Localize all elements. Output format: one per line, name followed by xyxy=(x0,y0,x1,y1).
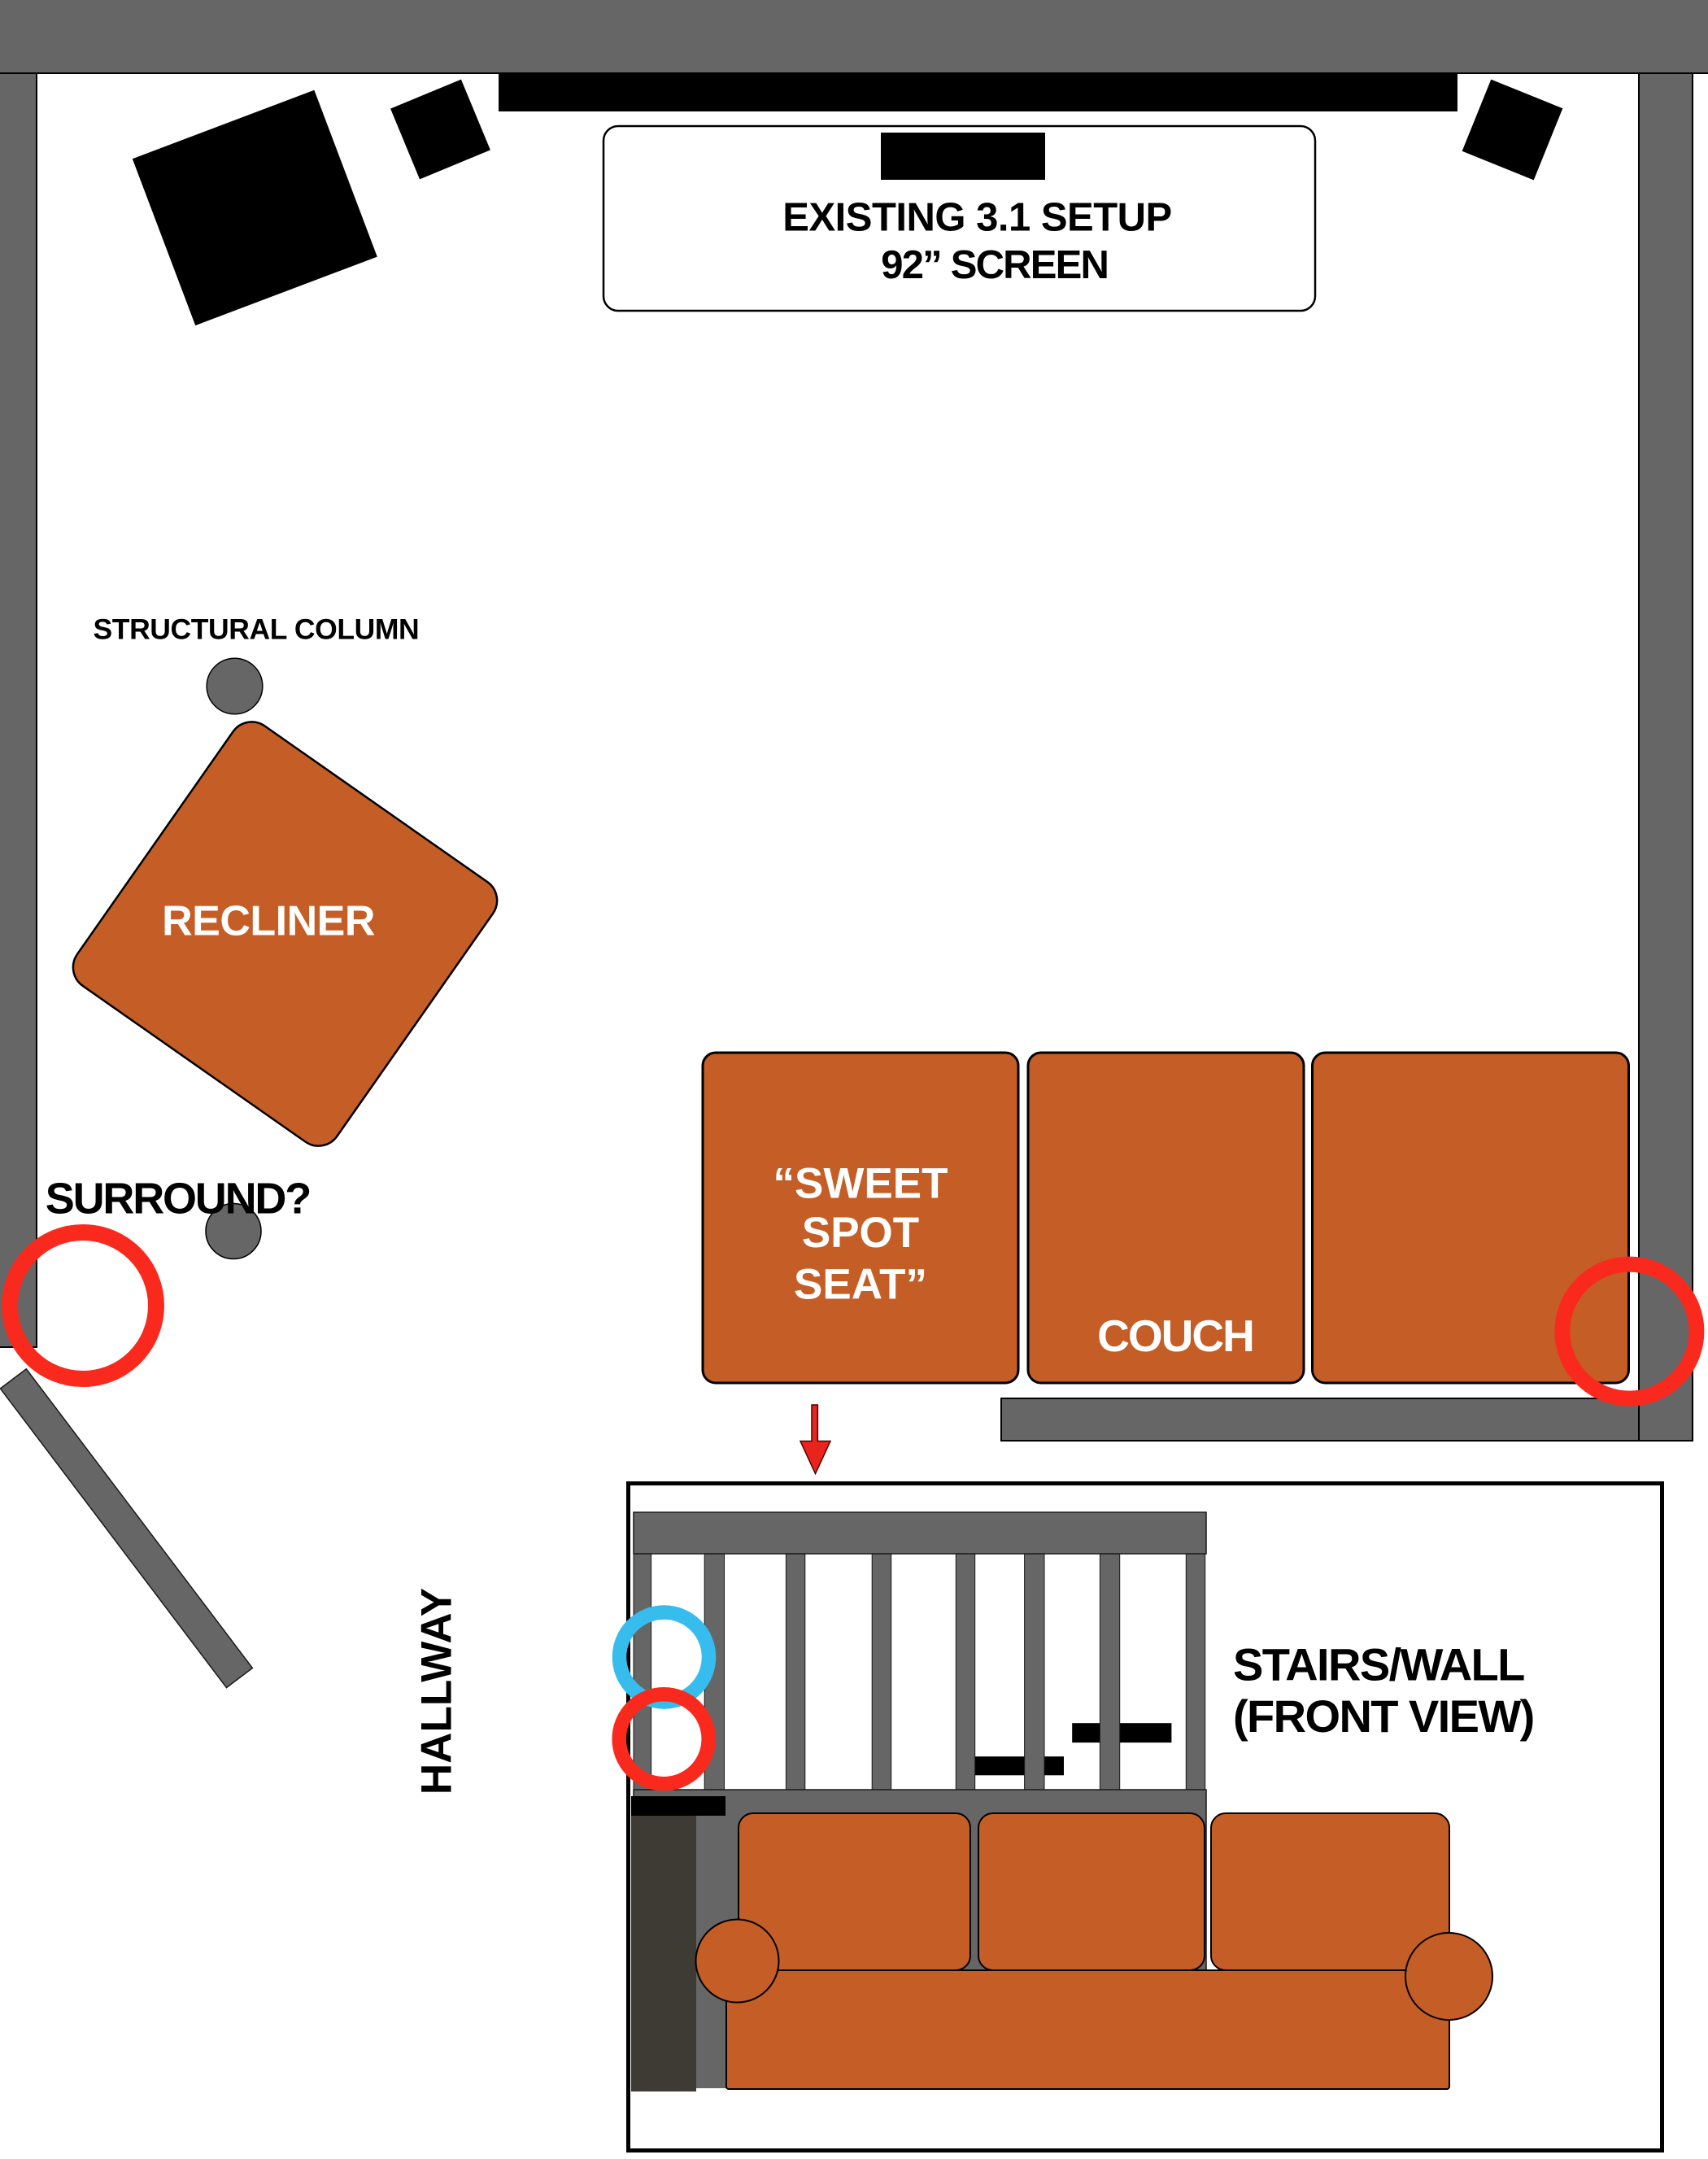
svg-text:HALLWAY: HALLWAY xyxy=(413,1588,461,1795)
svg-text:RECLINER: RECLINER xyxy=(162,897,375,944)
svg-text:COUCH: COUCH xyxy=(1097,1311,1253,1361)
svg-text:EXISTING 3.1 SETUP: EXISTING 3.1 SETUP xyxy=(782,196,1171,240)
svg-text:SEAT”: SEAT” xyxy=(794,1260,927,1308)
svg-text:STRUCTURAL COLUMN: STRUCTURAL COLUMN xyxy=(94,613,420,646)
svg-text:STAIRS/WALL: STAIRS/WALL xyxy=(1233,1639,1524,1690)
svg-text:SPOT: SPOT xyxy=(802,1209,919,1257)
svg-text:SURROUND?: SURROUND? xyxy=(46,1174,310,1223)
svg-text:“SWEET: “SWEET xyxy=(773,1160,948,1208)
svg-text:(FRONT VIEW): (FRONT VIEW) xyxy=(1233,1690,1534,1742)
svg-text:92” SCREEN: 92” SCREEN xyxy=(881,243,1108,287)
